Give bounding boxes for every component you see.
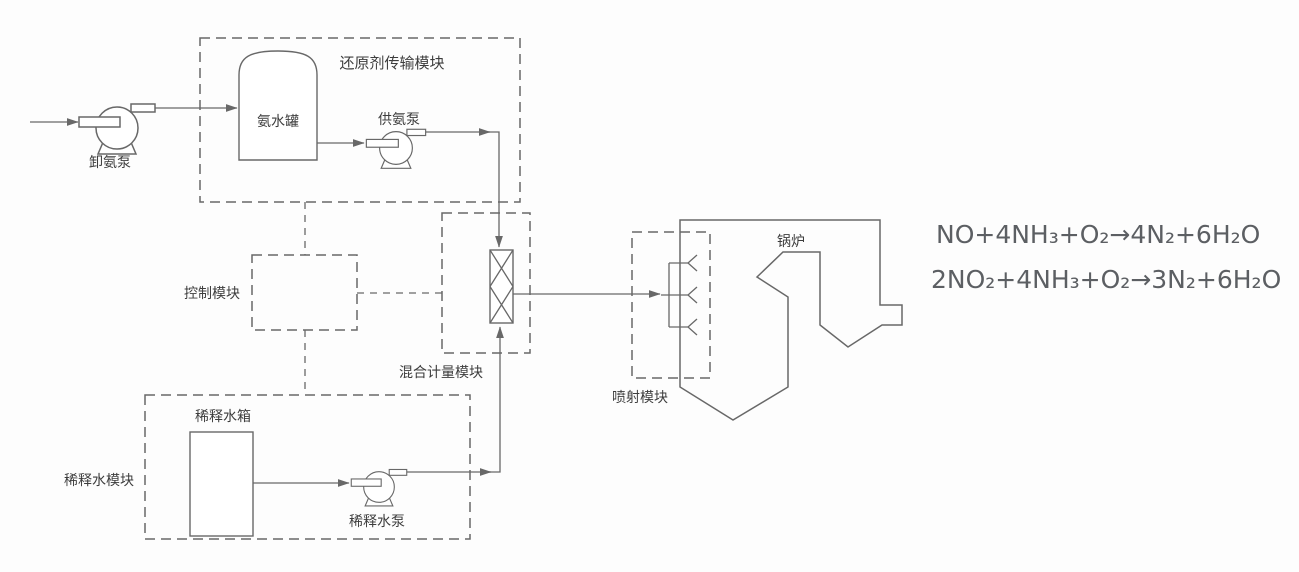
supply-pump-to-mixer-line [426, 132, 499, 247]
scr-denitration-flow-diagram: 卸氨泵 还原剂传输模块 氨水罐 供氨泵 控制模块 混合计量模块 稀释水模块 稀释… [0, 0, 1299, 572]
process-flow-diagram-canvas: 卸氨泵 还原剂传输模块 氨水罐 供氨泵 控制模块 混合计量模块 稀释水模块 稀释… [0, 0, 1299, 572]
mixing-metering-module-label: 混合计量模块 [399, 365, 483, 381]
supply-pump-label: 供氨泵 [378, 112, 420, 128]
control-module-box [252, 255, 357, 330]
unloading-pump-icon [79, 104, 155, 154]
dilution-pump-icon [351, 469, 406, 506]
injection-module-box [632, 232, 710, 378]
control-module-label: 控制模块 [184, 286, 240, 302]
boiler-outline [680, 220, 902, 420]
dilution-tank-label: 稀释水箱 [195, 409, 251, 425]
dilution-water-module-label: 稀释水模块 [64, 473, 134, 489]
spray-nozzle-icons [688, 255, 697, 335]
injection-manifold-icon [661, 255, 697, 335]
ammonia-tank-icon [239, 51, 317, 160]
scr-reaction-equation-1: NO+4NH₃+O₂→4N₂+6H₂O [936, 220, 1260, 249]
mixing-metering-module-box [442, 213, 530, 353]
dilution-tank-icon [190, 432, 253, 536]
boiler-label: 锅炉 [777, 234, 805, 250]
scr-reaction-equation-2: 2NO₂+4NH₃+O₂→3N₂+6H₂O [931, 265, 1281, 294]
reductant-transport-module-label: 还原剂传输模块 [339, 54, 444, 72]
unloading-pump-label: 卸氨泵 [89, 155, 131, 171]
supply-pump-icon [366, 129, 425, 168]
static-mixer-icon [490, 250, 513, 323]
dilution-pump-to-mixer-line [407, 327, 500, 472]
dilution-pump-label: 稀释水泵 [349, 514, 405, 530]
ammonia-tank-label: 氨水罐 [257, 114, 299, 130]
injection-module-label: 喷射模块 [612, 390, 668, 406]
